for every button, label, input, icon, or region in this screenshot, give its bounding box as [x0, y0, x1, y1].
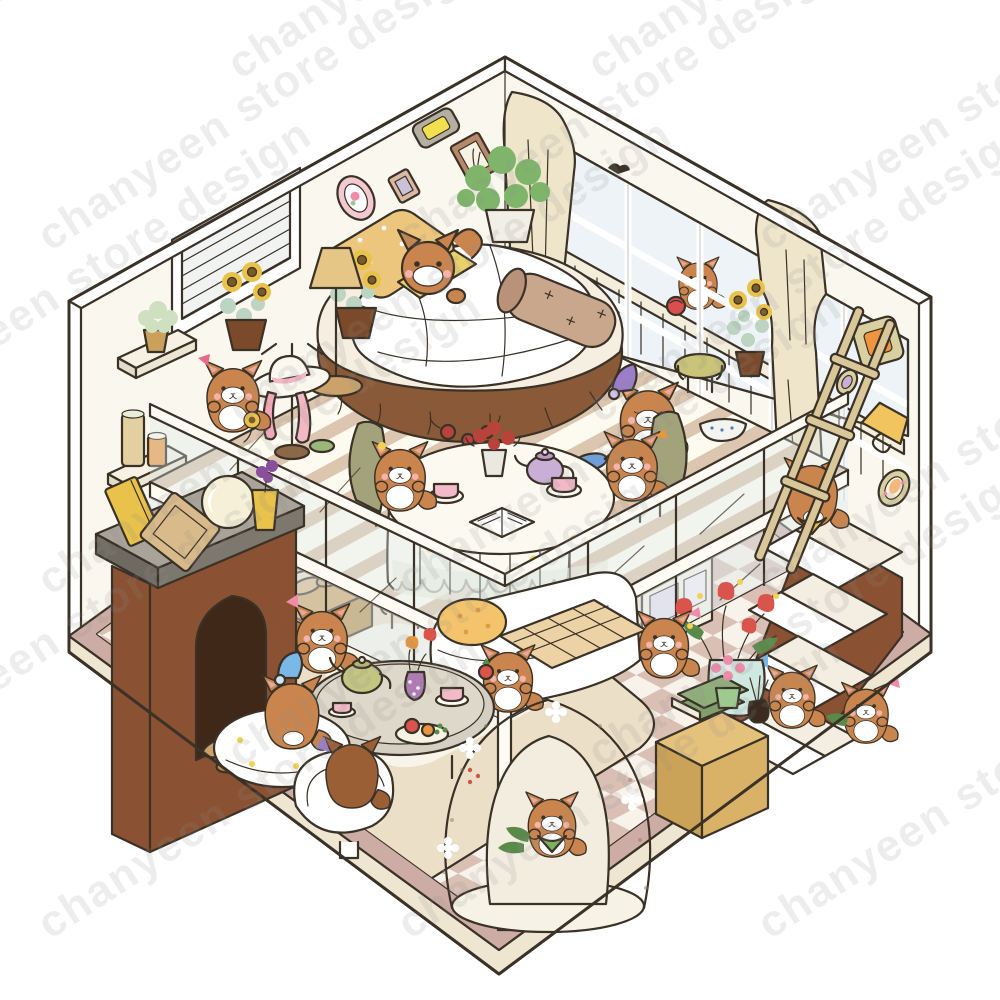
isometric-room-illustration: chanyeen store designchanyeen store desi… [0, 0, 1000, 1000]
illustration-canvas: chanyeen store designchanyeen store desi… [0, 0, 1000, 1000]
